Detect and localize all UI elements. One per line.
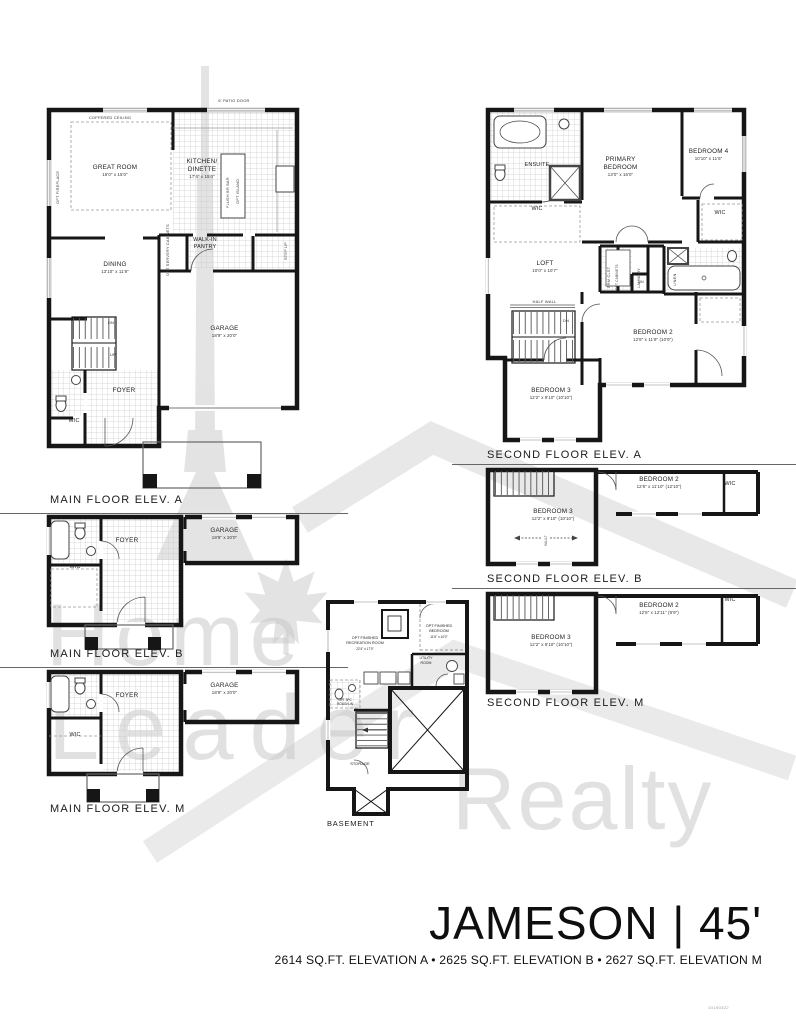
label-laundry: LAUNDRY <box>636 268 641 288</box>
room-label-bedroom-3: BEDROOM 3 12'2" x 9'10" (10'10") <box>508 508 598 522</box>
label-opt-servery: OPT SERVERY CABINETS <box>165 224 170 276</box>
plan-second-floor-m: BEDROOM 2 12'8" x 12'11" (9'9") WIC BEDR… <box>486 592 760 704</box>
room-label-garage: GARAGE 18'9" x 20'0" <box>177 682 272 696</box>
label-opt-cabinets: OPT CABINETS <box>615 264 619 290</box>
toilet-icon <box>75 682 85 694</box>
caption-main-floor-a: MAIN FLOOR ELEV. A <box>50 494 183 506</box>
room-label-bedroom-2: BEDROOM 2 12'8" x 11'9" (10'9") <box>608 329 698 343</box>
stair-arrow <box>362 728 386 733</box>
bathtub-icon <box>51 521 69 559</box>
divider-line <box>0 667 348 668</box>
porch <box>85 625 173 650</box>
room-label-great-room: GREAT ROOM 15'0" x 15'0" <box>70 164 160 178</box>
label-opt-fireplace: OPT FIREPLACE <box>55 171 60 204</box>
room-label-ensuite: ENSUITE <box>507 162 567 169</box>
room-label-garage: GARAGE 18'9" x 20'0" <box>177 527 272 541</box>
label-stairs-dn: DN <box>558 318 574 323</box>
caption-second-floor-m: SECOND FLOOR ELEV. M <box>487 697 644 709</box>
cabinet-icon <box>364 672 378 684</box>
plan-second-floor-a: ENSUITE WIC PRIMARY BEDROOM 13'0" x 16'0… <box>486 108 746 446</box>
divider-line <box>0 513 348 514</box>
room-label-bedroom-3: BEDROOM 3 12'2" x 9'10" (10'10") <box>506 634 596 648</box>
room-label-wic: WIC <box>712 481 748 488</box>
unexcavated-area <box>390 688 465 772</box>
porch <box>143 442 261 488</box>
room-label-wic: WIC <box>712 597 748 604</box>
room-label-bedroom-3: BEDROOM 3 12'2" x 9'10" (10'10") <box>506 387 596 401</box>
room-label-wic: WIC <box>59 732 91 739</box>
label-stairs-up: UP <box>105 352 121 357</box>
room-label-dining: DINING 13'10" x 11'8" <box>75 261 155 275</box>
plan-basement: OPT FINISHED RECREATION ROOM 22'4" x 17'… <box>326 600 470 826</box>
bathtub-icon <box>51 676 69 712</box>
plan-main-floor-b: FOYER WIC GARAGE 18'9" x 20'0" <box>47 515 299 655</box>
room-label-walkin-pantry: WALK-IN PANTRY <box>175 237 235 251</box>
caption-second-floor-a: SECOND FLOOR ELEV. A <box>487 449 642 461</box>
toilet-icon <box>75 527 85 539</box>
shower-icon <box>550 166 580 200</box>
model-title: JAMESON | 45' <box>360 896 762 950</box>
water-heater-icon <box>447 661 458 672</box>
label-patio-door: 6' PATIO DOOR <box>202 98 266 103</box>
room-label-wic: WIC <box>700 210 740 217</box>
room-label-wic: WIC <box>512 206 562 213</box>
revision-code: 10190322 <box>708 1005 729 1010</box>
stove-icon <box>276 166 294 192</box>
room-label-rough-in: OPT 3PC ROUGH-IN <box>328 698 362 707</box>
watermark-word-realty: Realty <box>452 748 713 850</box>
label-flush-breakfast-bar: FLUSH BR BAR <box>225 177 230 208</box>
caption-main-floor-b: MAIN FLOOR ELEV. B <box>50 648 184 660</box>
room-label-storage: STORAGE <box>342 761 378 766</box>
caption-second-floor-b: SECOND FLOOR ELEV. B <box>487 573 643 585</box>
sink-icon <box>87 547 96 556</box>
room-label-foyer: FOYER <box>97 692 157 700</box>
room-label-bedroom-4: BEDROOM 4 10'10" x 11'6" <box>671 148 746 162</box>
model-subtitle: 2614 SQ.FT. ELEVATION A • 2625 SQ.FT. EL… <box>238 953 762 967</box>
shower-icon <box>668 248 688 264</box>
floor-plan-sheet: Home Leader Realty <box>0 0 796 1030</box>
window-markers <box>516 642 706 695</box>
label-half-wall: HALF WALL <box>522 299 567 304</box>
label-linen: LINEN <box>672 274 677 286</box>
label-opt-island: OPT ISLAND <box>235 179 240 204</box>
room-label-loft: LOFT 10'0" x 10'7" <box>515 260 575 274</box>
sink-icon <box>559 119 569 129</box>
room-label-bedroom-2: BEDROOM 2 12'8" x 12'11" (9'9") <box>614 602 704 616</box>
room-label-wic: WIC <box>59 418 89 425</box>
room-label-foyer: FOYER <box>97 537 157 545</box>
label-coffered-ceiling: COFFERED CEILING <box>75 115 145 120</box>
room-label-primary-bedroom: PRIMARY BEDROOM 13'0" x 16'0" <box>583 156 658 178</box>
toilet-icon <box>728 251 737 262</box>
label-vault: VAULT <box>544 535 548 546</box>
divider-line <box>452 464 796 465</box>
caption-basement: BASEMENT <box>327 819 375 828</box>
shower-icon <box>382 610 408 638</box>
plan-main-floor-a: COFFERED CEILING 6' PATIO DOOR OPT FIREP… <box>47 108 299 498</box>
sink-icon <box>72 376 81 385</box>
caption-main-floor-m: MAIN FLOOR ELEV. M <box>50 803 186 815</box>
bathtub-icon <box>494 116 546 148</box>
room-label-basement-bedroom: OPT FINISHED BEDROOM 11'6" x 10'0" <box>414 624 464 639</box>
plan-second-floor-b: BEDROOM 2 12'8" x 11'10" (12'10") WIC BE… <box>486 468 760 570</box>
room-label-garage: GARAGE 18'9" x 20'0" <box>177 325 272 339</box>
cabinet-icon <box>398 672 410 684</box>
cabinet-icon <box>380 672 396 684</box>
sink-icon <box>349 685 356 692</box>
label-broom-closet: BRM CLST <box>606 267 611 288</box>
furnace-icon <box>454 674 464 684</box>
label-step-up: STEP UP <box>283 242 288 260</box>
sink-icon <box>87 700 96 709</box>
room-label-recreation: OPT FINISHED RECREATION ROOM 22'4" x 17'… <box>334 636 396 651</box>
room-label-utility: UTILITY ROOM <box>412 656 440 666</box>
room-label-bedroom-2: BEDROOM 2 12'8" x 11'10" (12'10") <box>614 476 704 490</box>
label-stairs-dn: DN <box>103 320 119 325</box>
porch <box>87 774 159 802</box>
divider-line <box>452 588 796 589</box>
plan-main-floor-m: FOYER WIC GARAGE 18'9" x 20'0" <box>47 670 299 805</box>
room-label-wic: WIC <box>59 564 91 571</box>
label-linen-closet: LIN <box>634 280 648 284</box>
bathtub-icon <box>668 266 740 290</box>
room-label-foyer: FOYER <box>94 387 154 395</box>
